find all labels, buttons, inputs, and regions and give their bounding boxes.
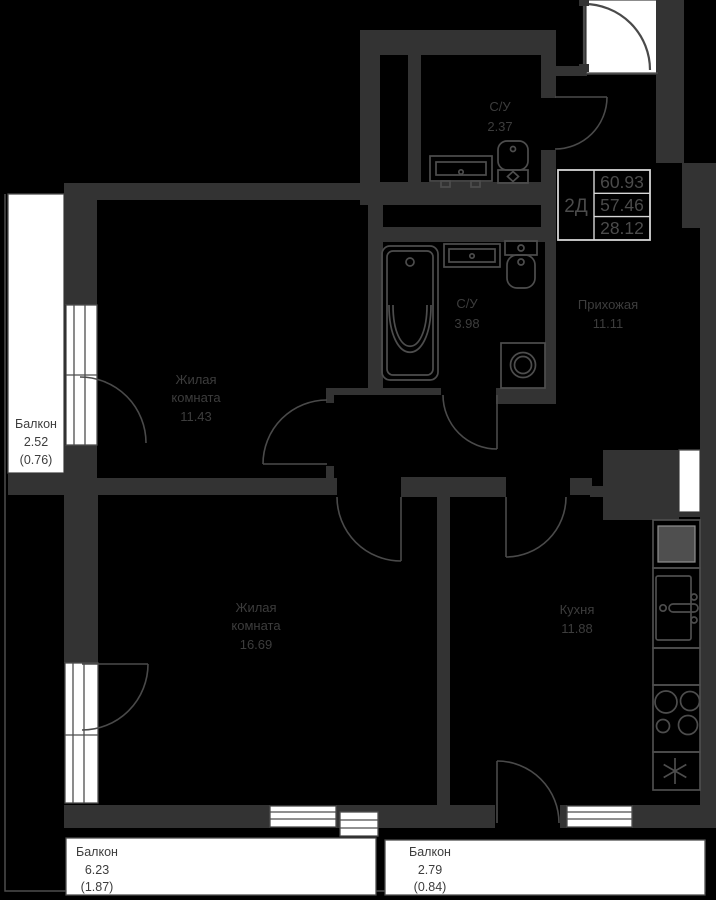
svg-text:2.79: 2.79 xyxy=(418,863,442,877)
svg-text:(0.76): (0.76) xyxy=(20,453,53,467)
svg-text:Балкон: Балкон xyxy=(15,417,57,431)
stove-burners xyxy=(655,691,700,735)
door-living1 xyxy=(263,400,327,464)
door-su-main xyxy=(443,395,497,449)
refrigerator xyxy=(658,526,695,562)
room-label-su-main: С/У 3.98 xyxy=(454,296,479,331)
entry-corridor xyxy=(586,0,658,74)
unit-type-label: 2Д xyxy=(564,196,588,217)
room-label-su-top: С/У 2.37 xyxy=(487,99,512,134)
sink xyxy=(444,244,500,267)
window-living2-bottom xyxy=(270,806,336,827)
door-living2 xyxy=(337,497,401,561)
room-label-living2: Жилая комната 16.69 xyxy=(231,600,281,652)
balcony-left-floor xyxy=(8,194,64,473)
door-kitchen xyxy=(506,497,566,557)
walls xyxy=(8,0,716,828)
svg-text:С/У: С/У xyxy=(489,99,511,114)
svg-text:комната: комната xyxy=(171,390,221,405)
svg-text:6.23: 6.23 xyxy=(85,863,109,877)
window-living2-balcony xyxy=(65,663,98,803)
window-kitchen-bottom xyxy=(567,806,632,827)
svg-text:11.43: 11.43 xyxy=(180,409,212,424)
shaft-niche xyxy=(679,450,700,512)
snowflake-icon xyxy=(664,758,687,784)
unit-area-secondary: 57.46 xyxy=(600,195,644,215)
svg-text:(0.84): (0.84) xyxy=(414,880,447,894)
room-label-kitchen: Кухня 11.88 xyxy=(560,602,595,636)
svg-text:Прихожая: Прихожая xyxy=(578,297,638,312)
window-segment-small xyxy=(340,812,378,836)
window-living1-balcony xyxy=(66,305,97,445)
white-areas xyxy=(8,0,705,895)
toilet xyxy=(505,241,537,288)
fixtures-su-top xyxy=(430,141,528,187)
room-label-living1: Жилая комната 11.43 xyxy=(171,372,221,424)
unit-info-box: 2Д 60.93 57.46 28.12 xyxy=(558,170,650,240)
toilet xyxy=(498,141,528,183)
washing-machine xyxy=(501,343,545,388)
svg-text:16.69: 16.69 xyxy=(240,637,273,652)
kitchen-cell xyxy=(653,648,700,685)
svg-text:С/У: С/У xyxy=(456,296,478,311)
kitchen-cell xyxy=(653,685,700,752)
door-su-top xyxy=(555,97,607,149)
svg-text:комната: комната xyxy=(231,618,281,633)
unit-area-total: 60.93 xyxy=(600,172,644,192)
svg-text:Балкон: Балкон xyxy=(409,845,451,859)
unit-area-living: 28.12 xyxy=(600,218,644,238)
svg-text:Жилая: Жилая xyxy=(235,600,276,615)
floor-plan: 2Д 60.93 57.46 28.12 С/У 2.37 С/У 3.98 П… xyxy=(0,0,716,900)
fixtures-su-main xyxy=(382,241,545,388)
svg-text:11.88: 11.88 xyxy=(561,621,593,636)
svg-text:3.98: 3.98 xyxy=(454,316,479,331)
door-balcony-kitchen xyxy=(497,761,559,823)
fixtures-kitchen xyxy=(653,520,700,790)
room-label-hallway: Прихожая 11.11 xyxy=(578,297,638,331)
svg-text:2.37: 2.37 xyxy=(487,119,512,134)
svg-text:11.11: 11.11 xyxy=(593,316,624,331)
floor-plan-page: 2Д 60.93 57.46 28.12 С/У 2.37 С/У 3.98 П… xyxy=(0,0,716,900)
svg-text:Кухня: Кухня xyxy=(560,602,595,617)
svg-text:2.52: 2.52 xyxy=(24,435,48,449)
kitchen-sink xyxy=(656,576,698,640)
svg-text:Балкон: Балкон xyxy=(76,845,118,859)
svg-text:Жилая: Жилая xyxy=(175,372,216,387)
bathtub xyxy=(382,246,438,380)
svg-text:(1.87): (1.87) xyxy=(81,880,114,894)
